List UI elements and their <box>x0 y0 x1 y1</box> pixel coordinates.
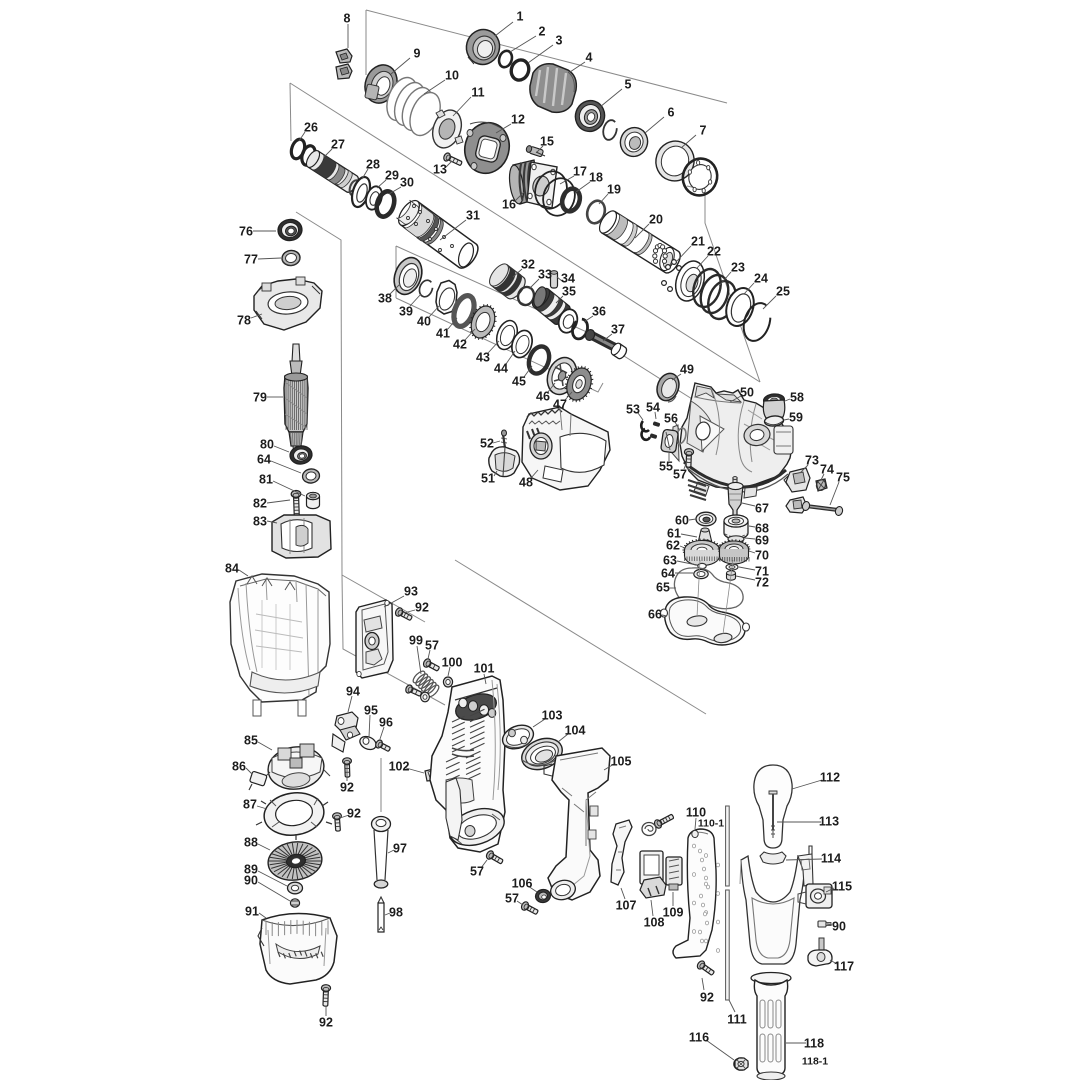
svg-text:49: 49 <box>680 362 694 376</box>
svg-text:54: 54 <box>646 400 660 414</box>
svg-text:111: 111 <box>727 1012 747 1026</box>
svg-text:92: 92 <box>347 806 361 820</box>
svg-text:75: 75 <box>836 470 850 484</box>
svg-text:65: 65 <box>656 580 670 594</box>
svg-text:59: 59 <box>789 410 803 424</box>
svg-text:92: 92 <box>319 1015 333 1029</box>
svg-text:114: 114 <box>821 851 841 865</box>
svg-text:38: 38 <box>378 291 392 305</box>
svg-text:60: 60 <box>675 513 689 527</box>
svg-text:95: 95 <box>364 703 378 717</box>
svg-text:72: 72 <box>755 575 769 589</box>
svg-text:108: 108 <box>644 915 665 929</box>
svg-text:64: 64 <box>661 566 675 580</box>
svg-text:2: 2 <box>539 24 546 38</box>
svg-text:118-1: 118-1 <box>802 1055 828 1067</box>
svg-text:79: 79 <box>253 390 267 404</box>
svg-text:80: 80 <box>260 437 274 451</box>
svg-text:106: 106 <box>512 876 533 890</box>
svg-text:39: 39 <box>399 304 413 318</box>
svg-text:90: 90 <box>244 873 258 887</box>
svg-text:18: 18 <box>589 170 603 184</box>
svg-text:22: 22 <box>707 244 721 258</box>
svg-text:117: 117 <box>834 959 854 973</box>
svg-text:51: 51 <box>481 471 495 485</box>
svg-text:28: 28 <box>366 157 380 171</box>
svg-text:50: 50 <box>740 385 754 399</box>
svg-text:42: 42 <box>453 337 467 351</box>
svg-text:77: 77 <box>244 252 258 266</box>
svg-text:13: 13 <box>433 162 447 176</box>
svg-text:24: 24 <box>754 271 768 285</box>
svg-text:93: 93 <box>404 584 418 598</box>
svg-text:91: 91 <box>245 904 259 918</box>
svg-text:53: 53 <box>626 402 640 416</box>
svg-text:21: 21 <box>691 234 705 248</box>
svg-text:33: 33 <box>538 267 552 281</box>
svg-text:118: 118 <box>804 1036 824 1050</box>
svg-text:25: 25 <box>776 284 790 298</box>
svg-text:32: 32 <box>521 257 535 271</box>
svg-text:58: 58 <box>790 390 804 404</box>
svg-text:47: 47 <box>553 397 567 411</box>
svg-text:92: 92 <box>700 990 714 1004</box>
svg-text:101: 101 <box>474 661 495 675</box>
svg-text:87: 87 <box>243 797 257 811</box>
svg-text:94: 94 <box>346 684 360 698</box>
svg-text:1: 1 <box>517 9 524 23</box>
svg-text:57: 57 <box>470 864 484 878</box>
svg-text:57: 57 <box>505 891 519 905</box>
svg-text:40: 40 <box>417 314 431 328</box>
svg-text:104: 104 <box>565 723 586 737</box>
svg-text:86: 86 <box>232 759 246 773</box>
svg-text:48: 48 <box>519 475 533 489</box>
svg-text:92: 92 <box>415 600 429 614</box>
svg-text:43: 43 <box>476 350 490 364</box>
svg-text:83: 83 <box>253 514 267 528</box>
svg-text:56: 56 <box>664 411 678 425</box>
svg-text:92: 92 <box>340 780 354 794</box>
svg-text:57: 57 <box>425 638 439 652</box>
svg-text:44: 44 <box>494 361 508 375</box>
svg-text:55: 55 <box>659 459 673 473</box>
svg-text:69: 69 <box>755 533 769 547</box>
svg-text:81: 81 <box>259 472 273 486</box>
svg-text:73: 73 <box>805 453 819 467</box>
svg-text:70: 70 <box>755 548 769 562</box>
svg-text:96: 96 <box>379 715 393 729</box>
svg-text:27: 27 <box>331 137 345 151</box>
svg-text:37: 37 <box>611 322 625 336</box>
svg-text:15: 15 <box>540 134 554 148</box>
svg-text:110-1: 110-1 <box>698 817 724 829</box>
svg-text:17: 17 <box>573 164 587 178</box>
svg-text:19: 19 <box>607 182 621 196</box>
svg-text:98: 98 <box>389 905 403 919</box>
svg-text:99: 99 <box>409 633 423 647</box>
svg-text:113: 113 <box>819 814 839 828</box>
svg-text:16: 16 <box>502 197 516 211</box>
svg-text:29: 29 <box>385 168 399 182</box>
svg-text:115: 115 <box>832 879 852 893</box>
svg-text:82: 82 <box>253 496 267 510</box>
svg-text:35: 35 <box>562 284 576 298</box>
svg-text:97: 97 <box>393 841 407 855</box>
svg-text:46: 46 <box>536 389 550 403</box>
svg-text:102: 102 <box>389 759 410 773</box>
svg-text:84: 84 <box>225 561 239 575</box>
svg-text:90: 90 <box>832 919 846 933</box>
svg-text:103: 103 <box>542 708 563 722</box>
svg-text:5: 5 <box>625 77 632 91</box>
svg-text:6: 6 <box>668 105 675 119</box>
svg-text:63: 63 <box>663 553 677 567</box>
svg-text:105: 105 <box>611 754 632 768</box>
svg-text:62: 62 <box>666 538 680 552</box>
svg-text:45: 45 <box>512 374 526 388</box>
svg-text:74: 74 <box>820 462 834 476</box>
svg-text:30: 30 <box>400 175 414 189</box>
svg-text:85: 85 <box>244 733 258 747</box>
svg-text:116: 116 <box>689 1030 709 1044</box>
svg-text:26: 26 <box>304 120 318 134</box>
svg-text:109: 109 <box>663 905 684 919</box>
svg-text:7: 7 <box>700 123 707 137</box>
svg-text:57: 57 <box>673 467 687 481</box>
svg-text:67: 67 <box>755 501 769 515</box>
svg-text:88: 88 <box>244 835 258 849</box>
svg-text:107: 107 <box>616 898 637 912</box>
svg-text:9: 9 <box>414 46 421 60</box>
svg-text:10: 10 <box>445 68 459 82</box>
svg-text:52: 52 <box>480 436 494 450</box>
svg-text:76: 76 <box>239 224 253 238</box>
svg-text:8: 8 <box>344 11 351 25</box>
svg-text:34: 34 <box>561 271 575 285</box>
svg-text:11: 11 <box>471 85 484 99</box>
svg-text:23: 23 <box>731 260 745 274</box>
svg-text:112: 112 <box>820 770 840 784</box>
svg-text:12: 12 <box>511 112 525 126</box>
svg-text:31: 31 <box>466 208 480 222</box>
svg-text:20: 20 <box>649 212 663 226</box>
svg-text:100: 100 <box>442 655 463 669</box>
svg-text:4: 4 <box>586 50 593 64</box>
svg-text:78: 78 <box>237 313 251 327</box>
svg-text:64: 64 <box>257 452 271 466</box>
svg-text:3: 3 <box>556 33 563 47</box>
svg-text:41: 41 <box>436 326 450 340</box>
svg-text:36: 36 <box>592 304 606 318</box>
svg-text:66: 66 <box>648 607 662 621</box>
